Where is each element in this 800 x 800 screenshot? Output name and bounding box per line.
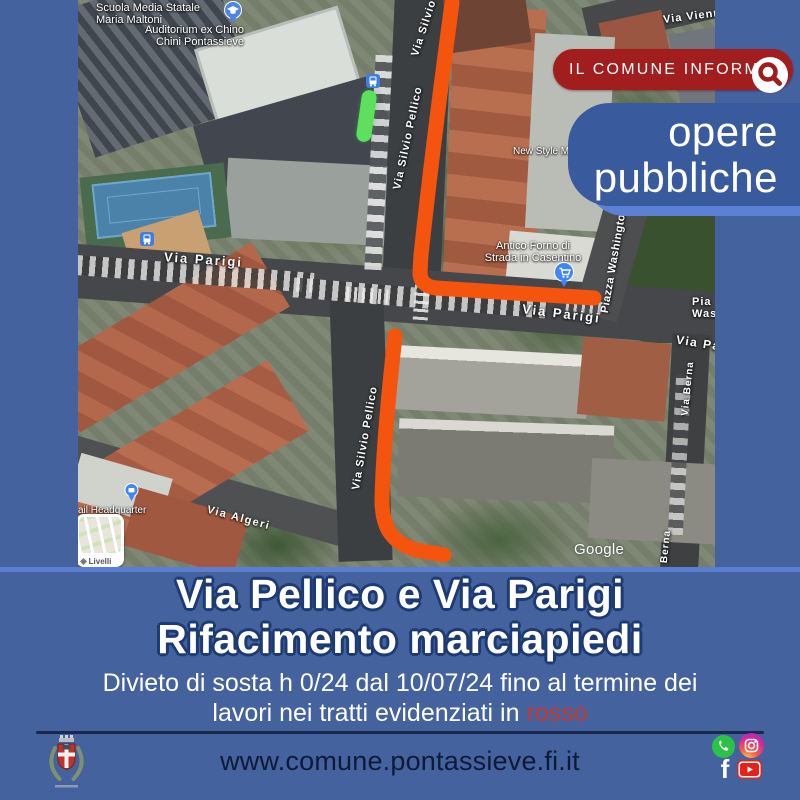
label-pw-line1: Pia xyxy=(692,296,715,308)
footer-divider xyxy=(36,731,764,734)
title-line2: Rifacimento marciapiedi xyxy=(0,617,800,662)
bus-stop-icon xyxy=(366,74,380,93)
layers-thumbnail xyxy=(79,517,121,553)
title-line1: Via Pellico e Via Parigi xyxy=(0,572,800,617)
route-lower-pellico xyxy=(382,336,444,555)
label-new-style: New Style M xyxy=(513,146,569,158)
magnifier-icon xyxy=(752,57,788,93)
google-attribution: Google xyxy=(574,544,624,556)
instagram-icon[interactable] xyxy=(739,733,764,763)
label-forno-line2: Strada in Casentino xyxy=(473,252,593,264)
poster-canvas: Scuola Media Statale Maria Maltoni Audit… xyxy=(0,0,800,800)
label-scuola: Scuola Media Statale Maria Maltoni xyxy=(96,2,200,26)
comune-informa-badge: IL COMUNE INFORMA xyxy=(553,49,793,90)
street-label-piazza-washington-cut: Pia Wash xyxy=(692,296,715,320)
page-title: Via Pellico e Via Parigi Rifacimento mar… xyxy=(0,572,800,662)
youtube-icon[interactable] xyxy=(737,760,762,784)
bus-stop-icon xyxy=(140,232,154,251)
layers-label: Livelli xyxy=(78,557,124,566)
poi-pin-icon xyxy=(124,483,139,507)
shop-pin-icon xyxy=(554,262,574,293)
label-scuola-line1: Scuola Media Statale xyxy=(96,2,200,14)
layers-control[interactable]: Livelli xyxy=(78,514,124,567)
notice-body: Divieto di sosta h 0/24 dal 10/07/24 fin… xyxy=(103,669,698,727)
label-auditorium-line2: Chini Pontassieve xyxy=(144,36,244,48)
pubbliche-label: pubbliche xyxy=(594,155,778,201)
magnifier-badge-circle xyxy=(752,57,788,93)
label-pw-line2: Wash xyxy=(692,308,715,320)
opere-pubbliche-badge: opere pubbliche xyxy=(568,103,800,206)
comune-informa-label: IL COMUNE INFORMA xyxy=(569,49,773,90)
notice-text: Divieto di sosta h 0/24 dal 10/07/24 fin… xyxy=(0,668,800,728)
label-antico-forno: Antico Forno di Strada in Casentino xyxy=(473,240,593,264)
facebook-icon[interactable] xyxy=(717,756,733,782)
label-forno-line1: Antico Forno di xyxy=(473,240,593,252)
school-pin-icon xyxy=(224,1,242,29)
notice-highlight: rosso xyxy=(526,699,587,727)
website-url: www.comune.pontassieve.fi.it xyxy=(0,746,800,777)
opere-label: opere xyxy=(668,109,778,155)
